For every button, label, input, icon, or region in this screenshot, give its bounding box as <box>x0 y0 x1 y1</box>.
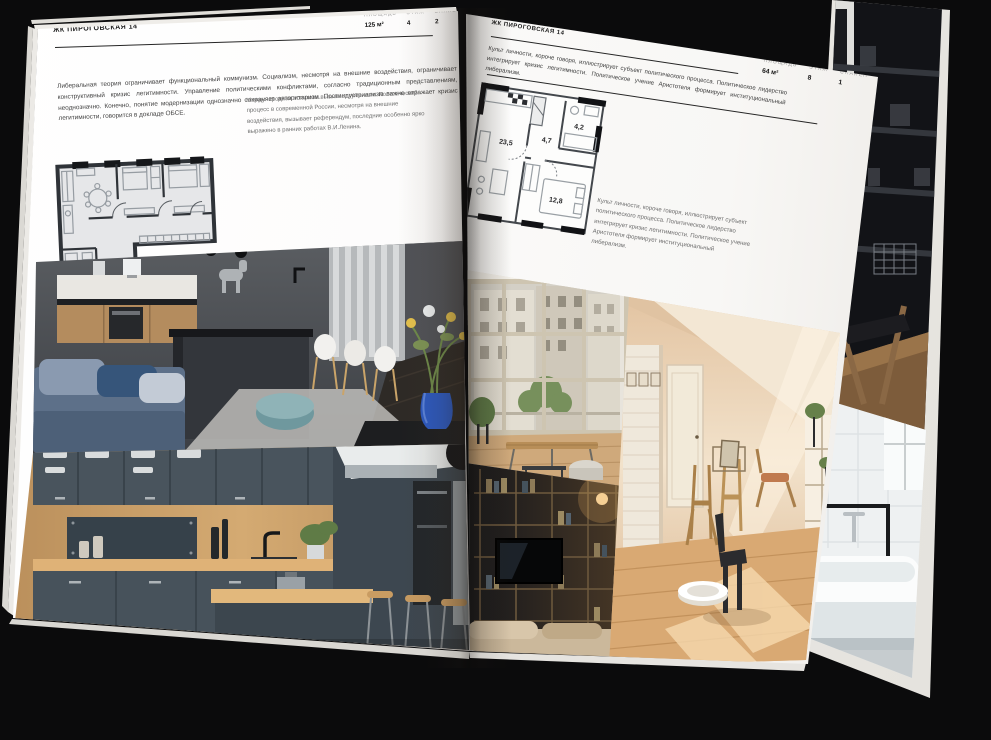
room-label-hall: 4,7 <box>541 137 552 145</box>
stat-bedrooms-value: 2 <box>435 15 462 24</box>
attic-room-illustration <box>609 297 840 666</box>
room-label-bathroom: 4,2 <box>574 123 585 131</box>
shelving-tv-illustration <box>466 463 624 666</box>
right-floor-plan: 23,5 4,7 4,2 12,8 <box>459 80 608 238</box>
left-header-rule <box>55 35 433 48</box>
stat-area-value: 125 м² <box>364 19 397 29</box>
loft-window-illustration <box>466 270 629 486</box>
stat-floor-value: 8 <box>807 73 827 84</box>
magazine-spread-mockup: ЖК ПИРОГОВСКАЯ 14 ПЛОЩАДЬ 125 м² ЭТАЖ 4 … <box>0 0 991 740</box>
stat-area: ПЛОЩАДЬ 64 м² <box>762 58 798 79</box>
stat-floor-label: ЭТАЖ <box>809 65 829 73</box>
left-plan-caption: Международная политика вызывает гуманизм… <box>246 88 430 137</box>
right-plan-caption: Культ личности, короче говоря, иллюстрир… <box>590 196 754 270</box>
right-page-title: ЖК ПИРОГОВСКАЯ 14 <box>491 20 565 37</box>
stat-floor: ЭТАЖ 8 <box>807 65 828 84</box>
stat-floor-value: 4 <box>407 17 426 26</box>
dark-kitchen-illustration <box>33 241 465 453</box>
slate-kitchen-illustration <box>15 441 469 651</box>
stat-bedrooms-value: 1 <box>838 77 867 89</box>
